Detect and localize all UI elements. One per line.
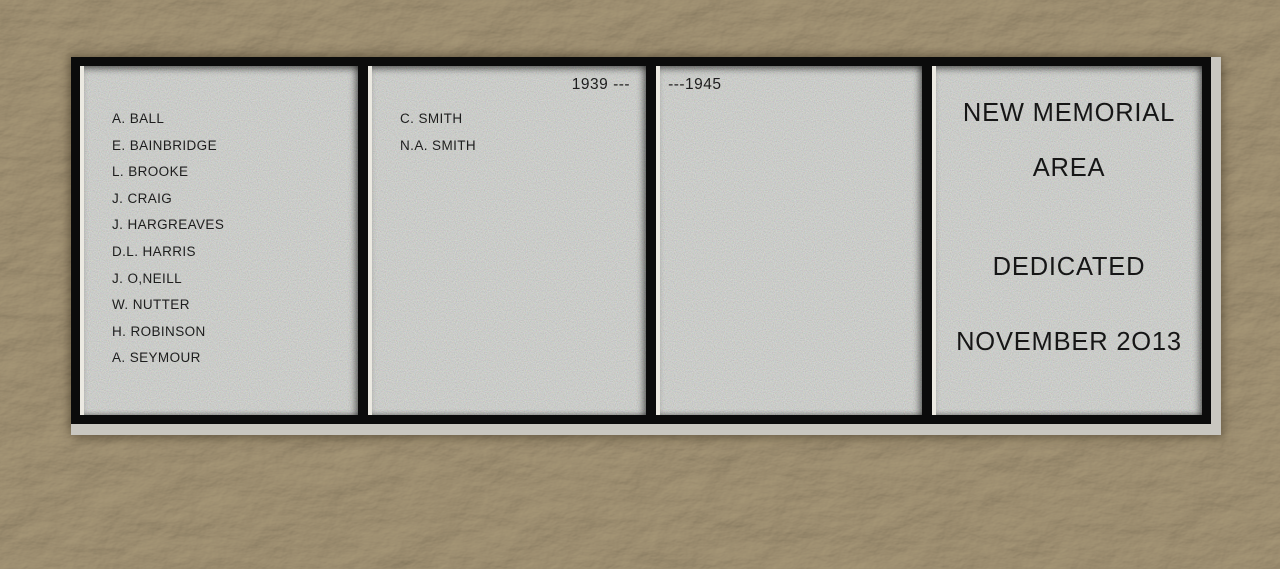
- memorial-name: W. NUTTER: [112, 292, 358, 319]
- year-label-1939: 1939 ---: [572, 76, 630, 94]
- panel-content: A. BALLE. BAINBRIDGEL. BROOKEJ. CRAIGJ. …: [84, 66, 358, 415]
- names-panel-left: A. BALLE. BAINBRIDGEL. BROOKEJ. CRAIGJ. …: [80, 66, 358, 415]
- memorial-plaque: A. BALLE. BAINBRIDGEL. BROOKEJ. CRAIGJ. …: [71, 57, 1211, 424]
- memorial-name: C. SMITH: [400, 106, 646, 133]
- names-panel-second: 1939 --- C. SMITHN.A. SMITH: [368, 66, 646, 415]
- memorial-name: J. HARGREAVES: [112, 212, 358, 239]
- dedication-line-2: AREA: [936, 153, 1202, 183]
- dedication-panel: NEW MEMORIAL AREA DEDICATED NOVEMBER 2O1…: [932, 66, 1202, 415]
- panel-content: 1939 --- C. SMITHN.A. SMITH: [372, 66, 646, 415]
- panel-row: A. BALLE. BAINBRIDGEL. BROOKEJ. CRAIGJ. …: [80, 66, 1202, 415]
- year-label-1945: ---1945: [668, 76, 721, 94]
- dedication-line-4: NOVEMBER 2O13: [936, 327, 1202, 357]
- memorial-name: J. O,NEILL: [112, 266, 358, 293]
- memorial-name: D.L. HARRIS: [112, 239, 358, 266]
- dedication-line-1: NEW MEMORIAL: [936, 98, 1202, 128]
- dedication-text: NEW MEMORIAL AREA DEDICATED NOVEMBER 2O1…: [936, 98, 1202, 415]
- dedication-line-3: DEDICATED: [936, 252, 1202, 282]
- blank-panel-third: ---1945: [656, 66, 922, 415]
- memorial-name: L. BROOKE: [112, 159, 358, 186]
- memorial-name: H. ROBINSON: [112, 319, 358, 346]
- memorial-name: N.A. SMITH: [400, 133, 646, 160]
- memorial-name: J. CRAIG: [112, 186, 358, 213]
- names-list-left: A. BALLE. BAINBRIDGEL. BROOKEJ. CRAIGJ. …: [84, 66, 358, 372]
- memorial-name: A. BALL: [112, 106, 358, 133]
- panel-content: ---1945: [660, 66, 922, 415]
- memorial-plaque-frame: A. BALLE. BAINBRIDGEL. BROOKEJ. CRAIGJ. …: [71, 57, 1221, 435]
- memorial-name: E. BAINBRIDGE: [112, 133, 358, 160]
- memorial-name: A. SEYMOUR: [112, 345, 358, 372]
